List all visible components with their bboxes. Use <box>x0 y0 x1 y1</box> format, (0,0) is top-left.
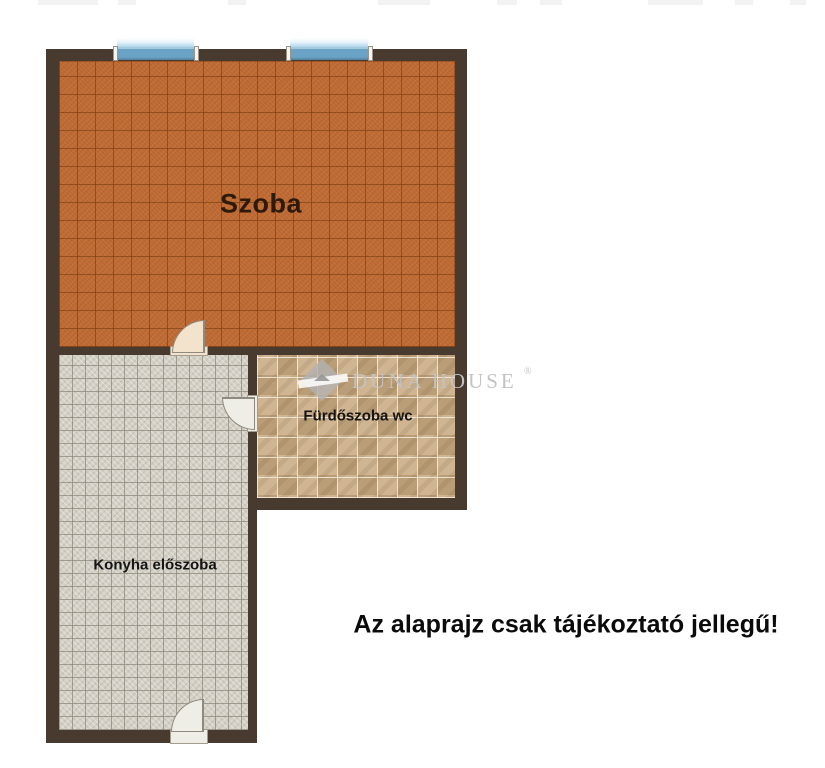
wall-furdo-bottom <box>248 498 467 510</box>
top-edge-artifact <box>540 0 562 5</box>
window-2 <box>291 47 368 60</box>
top-edge-artifact <box>497 0 517 5</box>
registered-trademark-symbol: ® <box>524 366 532 377</box>
wall-top <box>46 49 467 61</box>
window-1 <box>118 47 194 60</box>
room-label-szoba: Szoba <box>220 189 302 220</box>
watermark: DUNA HOUSE ® <box>296 360 546 402</box>
window-glow <box>117 38 194 47</box>
wall-left <box>46 49 59 743</box>
window-jamb <box>368 46 373 61</box>
top-edge-artifact <box>790 0 806 5</box>
wall-right <box>455 49 467 510</box>
room-label-furdoszoba: Fürdőszoba wc <box>303 408 412 425</box>
room-konyha-floor <box>59 355 248 730</box>
duna-house-roof-icon <box>314 374 330 381</box>
room-label-konyha: Konyha előszoba <box>93 557 216 574</box>
floor-plan: DUNA HOUSE ® Szoba Fürdőszoba wc Konyha … <box>0 0 825 768</box>
wall-konyha-bottom <box>46 730 257 743</box>
window-jamb <box>194 46 199 61</box>
disclaimer-text: Az alaprajz csak tájékoztató jellegű! <box>353 611 778 640</box>
top-edge-artifact <box>378 0 430 5</box>
top-edge-artifact <box>735 0 753 5</box>
watermark-brand-text: DUNA HOUSE <box>352 369 517 394</box>
window-glow <box>290 38 368 47</box>
top-edge-artifact <box>228 0 246 5</box>
top-edge-artifact <box>648 0 703 5</box>
top-edge-artifact <box>118 0 136 5</box>
top-edge-artifact <box>38 0 98 5</box>
